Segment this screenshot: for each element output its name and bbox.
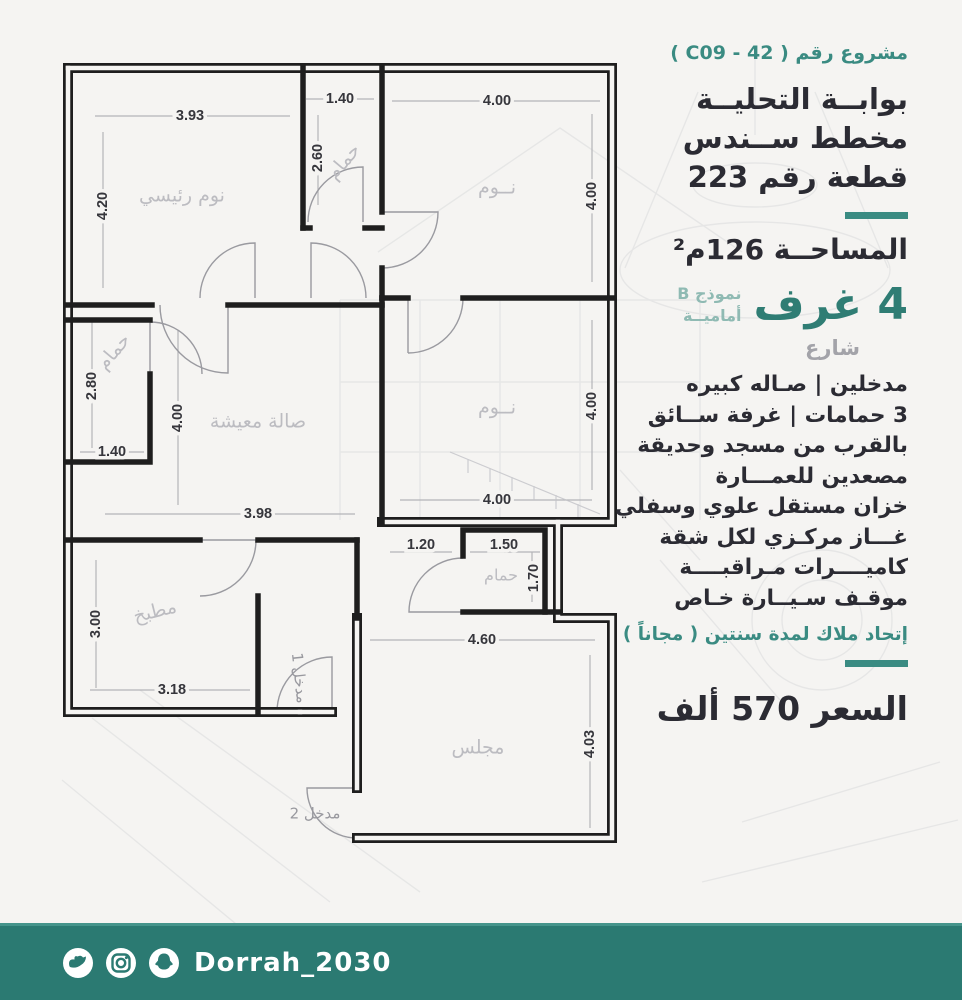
model-line-2: أماميــة <box>677 305 741 327</box>
twitter-icon[interactable] <box>62 947 94 979</box>
instagram-icon[interactable] <box>105 947 137 979</box>
room-label-living: صالة معيشة <box>210 411 306 433</box>
feature-item: خزان مستقل علوي وسفلي <box>598 492 908 523</box>
dim-living-h: 4.00 <box>170 404 186 432</box>
dim-bath-left-w: 1.40 <box>98 444 126 460</box>
dim-master-h: 4.20 <box>95 192 111 220</box>
feature-item: بالقرب من مسجد وحديقة <box>598 431 908 462</box>
title-line-3: قطعة رقم 223 <box>598 158 908 197</box>
dim-bed-top-w: 4.00 <box>483 93 511 109</box>
door-kitchen <box>200 540 256 596</box>
dim-bath-small-w: 1.50 <box>490 537 518 553</box>
label-entrance2: مدخل 2 <box>290 805 341 823</box>
model-line-1: نموذج B <box>677 283 741 305</box>
dim-bed-mid-w: 4.00 <box>483 492 511 508</box>
floorplan: 3.93 4.20 1.40 2.60 4.00 4.00 2.80 1.40 … <box>55 55 625 870</box>
room-label-majlis: مجلس <box>452 737 505 759</box>
divider-bar-bottom <box>845 660 908 667</box>
dim-bath-top-w: 1.40 <box>326 91 354 107</box>
door-hall <box>160 305 228 373</box>
door-hall-right <box>311 243 366 298</box>
poster-canvas: 3.93 4.20 1.40 2.60 4.00 4.00 2.80 1.40 … <box>0 0 962 1000</box>
room-label-kitchen: مطبخ <box>131 596 179 628</box>
model-block: نموذج B أماميــة <box>677 283 741 327</box>
dimension-lines <box>80 99 600 828</box>
area-text: المساحــة 126م² <box>598 233 908 266</box>
feature-item: غـــاز مركـزي لكل شقة <box>598 523 908 554</box>
dim-kitchen-w: 3.18 <box>158 682 186 698</box>
dim-living-w: 3.98 <box>244 506 272 522</box>
info-panel: مشروع رقم ( C09 - 42 ) بوابــة التحليــة… <box>598 42 908 728</box>
room-label-bedroom-mid: نــوم <box>478 397 516 419</box>
snapchat-icon[interactable] <box>148 947 180 979</box>
room-label-bath-small: حمام <box>484 566 518 585</box>
door-bedroom-mid <box>408 298 463 353</box>
dim-bath-left-h: 2.80 <box>84 372 100 400</box>
divider-bar-top <box>845 212 908 219</box>
rooms-summary: 4 غرف نموذج B أماميــة <box>616 282 908 328</box>
title-line-2: مخطط ســندس <box>598 119 908 158</box>
street-label: شارع <box>598 336 860 360</box>
project-number: مشروع رقم ( C09 - 42 ) <box>598 42 908 64</box>
dim-bath-small-h: 1.70 <box>526 564 542 592</box>
room-labels: نوم رئيسي حمام نــوم حمام صالة معيشة نــ… <box>92 139 518 822</box>
door-bedroom-top <box>382 212 438 268</box>
room-label-bath-top: حمام <box>322 139 365 184</box>
dim-kitchen-h: 3.00 <box>88 610 104 638</box>
feature-item: كاميــــرات مـراقبــــة <box>598 553 908 584</box>
door-bath-small <box>409 558 463 612</box>
dim-hall-w: 1.20 <box>407 537 435 553</box>
feature-item: مدخلين | صـاله كبيره <box>598 370 908 401</box>
owners-union-note: إتحاد ملاك لمدة سنتين ( مجاناً ) <box>598 624 908 645</box>
rooms-count: 4 غرف <box>754 282 908 328</box>
price-text: السعر 570 ألف <box>598 689 908 728</box>
door-arcs <box>150 167 463 838</box>
features-list: مدخلين | صـاله كبيره 3 حمامات | غرفة ســ… <box>598 370 908 614</box>
room-label-master-bedroom: نوم رئيسي <box>139 185 225 207</box>
feature-item: مصعدين للعمـــارة <box>598 462 908 493</box>
title-line-1: بوابــة التحليــة <box>598 80 908 119</box>
social-handle[interactable]: Dorrah_2030 <box>194 948 392 978</box>
room-label-bath-left: حمام <box>92 329 135 374</box>
feature-item: 3 حمامات | غرفة ســائق <box>598 401 908 432</box>
room-label-bedroom-top: نــوم <box>478 177 516 199</box>
balcony-railing <box>450 452 600 518</box>
footer-bar: Dorrah_2030 <box>0 923 962 1000</box>
feature-item: موقـف سـيــارة خـاص <box>598 584 908 615</box>
door-hall-left <box>200 243 255 298</box>
dim-majlis-w: 4.60 <box>468 632 496 648</box>
label-entrance1: مدخل 1 <box>288 652 311 704</box>
dim-master-w: 3.93 <box>176 108 204 124</box>
social-icons <box>62 947 180 979</box>
dim-majlis-h: 4.03 <box>582 730 598 758</box>
